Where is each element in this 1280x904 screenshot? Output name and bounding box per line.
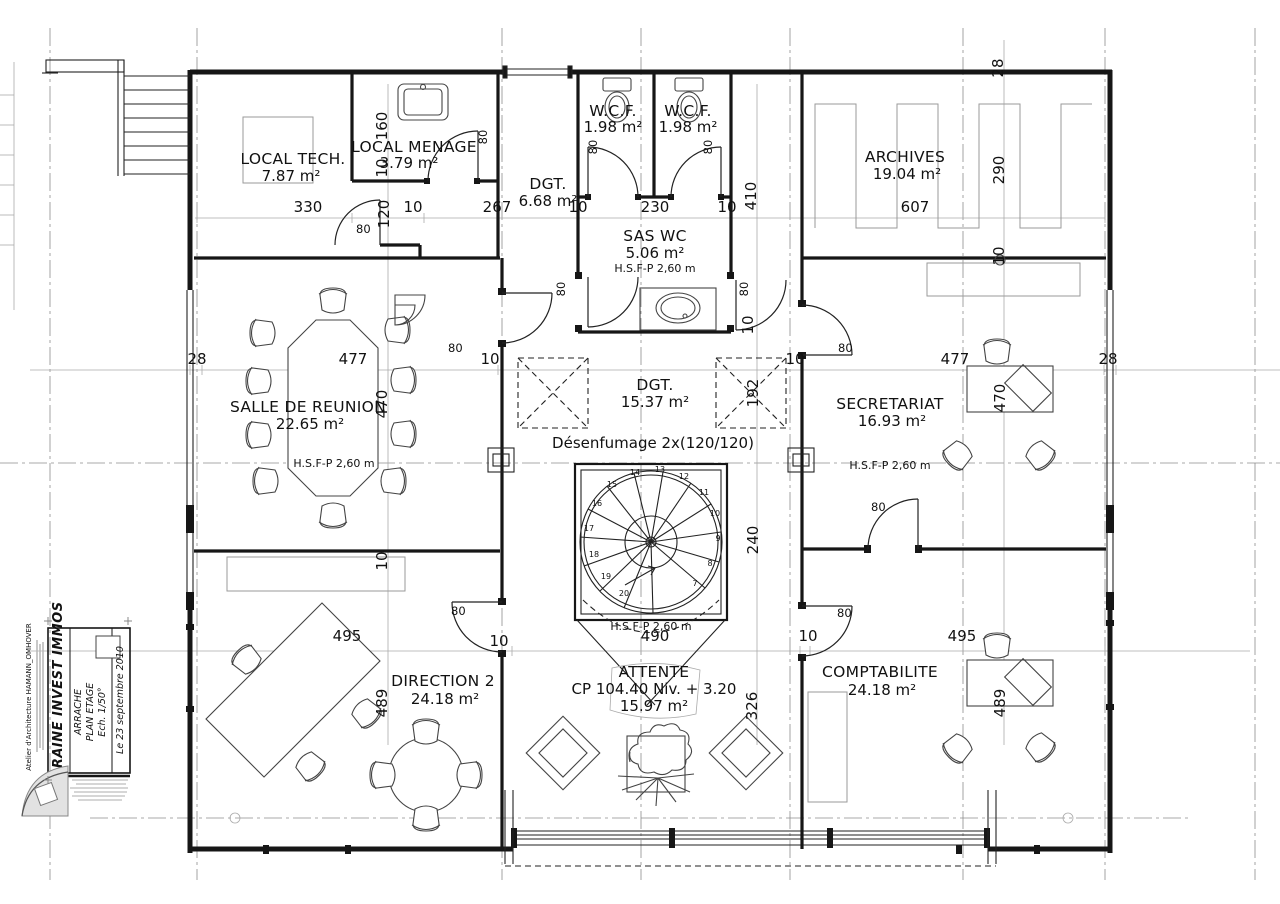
dim-10: 10 [403, 198, 422, 216]
drawing-date: Le 23 septembre 2010 [115, 646, 126, 754]
room-label-sas-wc: SAS WC [623, 227, 686, 245]
step-14: 14 [630, 468, 640, 477]
dim-10: 10 [568, 198, 587, 216]
dim-10: 10 [739, 315, 757, 334]
step-19: 19 [601, 572, 611, 581]
room-label-archives: ARCHIVES [865, 148, 945, 166]
door-sas-left [588, 277, 638, 327]
step-18: 18 [589, 550, 599, 559]
title-block: LORRAINE INVEST IMMOS ARRACHE PLAN ETAGE… [22, 601, 132, 816]
dim-326: 326 [743, 692, 761, 721]
dim-490: 490 [641, 627, 670, 645]
comptabilite-furniture [808, 633, 1059, 802]
bottom-glazing [505, 790, 996, 864]
step-20: 20 [619, 589, 629, 598]
door-width-tag: 80 [586, 140, 600, 155]
floor-plan-drawing: 7 8 9 10 11 12 13 14 15 16 17 18 19 20 H… [0, 0, 1280, 904]
dim-28-left: 28 [187, 350, 206, 368]
room-label-salle: SALLE DE REUNION [230, 398, 386, 416]
room-area-sas-wc: 5.06 m² [626, 244, 685, 262]
door-width-tag: 80 [871, 500, 886, 514]
firm-logo [22, 766, 68, 816]
address-microtext [37, 640, 43, 752]
door-width-tag: 80 [838, 341, 853, 355]
step-17: 17 [584, 524, 594, 533]
dim-477-left: 477 [339, 350, 368, 368]
dim-330: 330 [294, 198, 323, 216]
exterior-stair [42, 60, 190, 176]
dim-120: 120 [375, 200, 393, 229]
door-width-tag: 80 [554, 282, 568, 297]
room-label-local-tech: LOCAL TECH. [241, 150, 346, 168]
door-width-tag: 80 [356, 222, 371, 236]
step-16: 16 [592, 499, 602, 508]
door-width-tag: 80 [737, 282, 751, 297]
door-hall-salle [502, 293, 552, 343]
dim-470-left: 470 [373, 390, 391, 419]
dim-28-right: 28 [1098, 350, 1117, 368]
dim-10: 10 [480, 350, 499, 368]
step-13: 13 [655, 465, 665, 474]
fine-print-block [70, 780, 128, 800]
room-label-attente: ATTENTE [619, 663, 690, 681]
room-height-salle: H.S.F-P 2,60 m [293, 457, 374, 470]
dim-230: 230 [641, 198, 670, 216]
room-area-wcf-right: 1.98 m² [659, 118, 718, 136]
sheet-edge-ticks [0, 62, 14, 310]
archives-shelving [815, 104, 1092, 228]
comptabilite-cabinet [808, 692, 847, 802]
door-width-tag: 80 [476, 130, 490, 145]
step-7: 7 [692, 579, 697, 588]
room-area-secretariat: 16.93 m² [858, 412, 926, 430]
architect-firm: Atelier d'Architecture HAMANN_OMHOVER [25, 623, 33, 771]
furniture [206, 78, 1092, 831]
dim-267: 267 [483, 198, 512, 216]
door-width-tag: 80 [448, 341, 463, 355]
dim-10: 10 [798, 627, 817, 645]
step-10: 10 [710, 509, 720, 518]
washbasin [640, 288, 716, 330]
room-height-secretariat: H.S.F-P 2,60 m [849, 459, 930, 472]
top-window [503, 66, 572, 78]
room-area-attente: 15.97 m² [620, 697, 688, 715]
dim-10: 10 [785, 350, 804, 368]
room-label-dgt-hall: DGT. [636, 376, 673, 394]
plant [618, 724, 694, 806]
room-area-salle: 22.65 m² [276, 415, 344, 433]
dim-495-left: 495 [333, 627, 362, 645]
dim-10: 10 [373, 158, 391, 177]
dim-495-right: 495 [948, 627, 977, 645]
dim-240: 240 [744, 526, 762, 555]
lounge-chair-left [526, 716, 600, 790]
room-area-wcf-left: 1.98 m² [584, 118, 643, 136]
door-width-tag: 80 [451, 604, 466, 618]
step-9: 9 [715, 534, 720, 543]
room-label-secretariat: SECRETARIAT [836, 395, 944, 413]
dim-10: 10 [717, 198, 736, 216]
dim-607: 607 [901, 198, 930, 216]
floor-plan-sheet: 7 8 9 10 11 12 13 14 15 16 17 18 19 20 H… [0, 0, 1280, 904]
dim-489-right: 489 [991, 689, 1009, 718]
dim-290: 290 [990, 156, 1008, 185]
step-11: 11 [699, 488, 709, 497]
step-15: 15 [607, 480, 617, 489]
project-name: ARRACHE [73, 689, 84, 736]
dim-477-right: 477 [941, 350, 970, 368]
round-table [389, 738, 463, 812]
step-12: 12 [679, 472, 689, 481]
secretariat-closet [927, 263, 1080, 296]
door-width-tag: 80 [837, 606, 852, 620]
lounge-chair-right [709, 716, 783, 790]
room-area-comptabilite: 24.18 m² [848, 681, 916, 699]
room-area-dgt-hall: 15.37 m² [621, 393, 689, 411]
dim-10: 10 [489, 632, 508, 650]
dim-410: 410 [742, 182, 760, 211]
dim-470-right: 470 [991, 384, 1009, 413]
room-label-direction: DIRECTION 2 [391, 672, 495, 690]
door-width-tag: 80 [701, 140, 715, 155]
dim-160: 160 [373, 112, 391, 141]
drawing-scale: Ech. 1/50° [97, 687, 108, 736]
room-height-sas-wc: H.S.F-P 2,60 m [614, 262, 695, 275]
desenfumage-note: Désenfumage 2x(120/120) [552, 434, 754, 452]
room-label-comptabilite: COMPTABILITE [822, 663, 938, 681]
dim-489-left: 489 [373, 689, 391, 718]
room-area-local-tech: 7.87 m² [262, 167, 321, 185]
room-area-archives: 19.04 m² [873, 165, 941, 183]
room-area-direction: 24.18 m² [411, 690, 479, 708]
dim-28-right-top: 28 [989, 58, 1007, 77]
dim-10: 10 [373, 551, 391, 570]
sheet-name: PLAN ETAGE [85, 683, 96, 741]
room-label-dgt-top: DGT. [529, 175, 566, 193]
dim-10: 10 [990, 246, 1008, 265]
step-8: 8 [707, 559, 712, 568]
cleaning-sink [398, 84, 448, 120]
dim-192: 192 [744, 379, 762, 408]
room-note-attente: CP 104.40 Niv. + 3.20 [572, 680, 737, 698]
